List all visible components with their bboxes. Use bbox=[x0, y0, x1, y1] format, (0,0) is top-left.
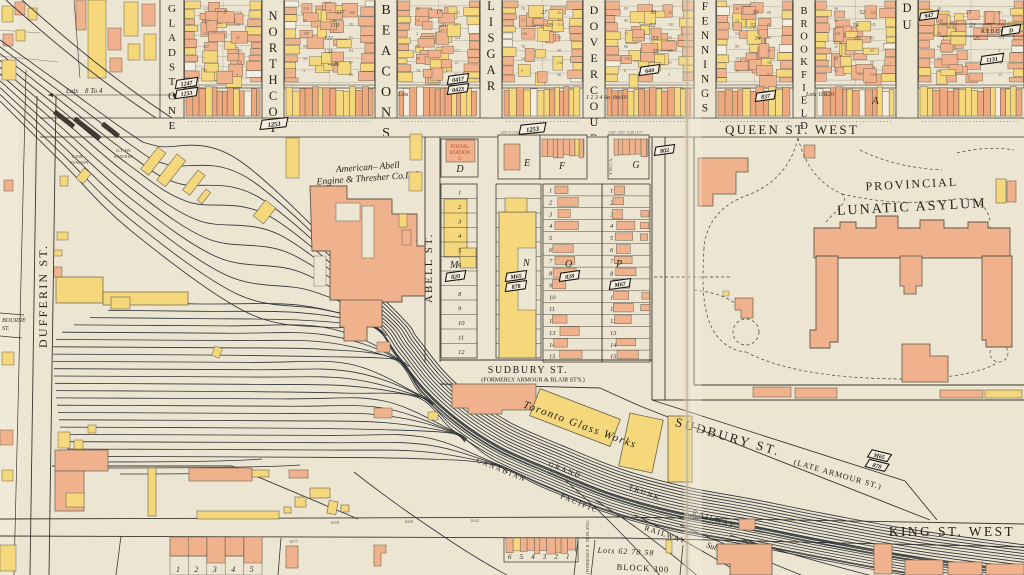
svg-text:122: 122 bbox=[324, 36, 333, 42]
svg-text:117: 117 bbox=[336, 10, 346, 16]
svg-text:(FORMERLY ARMOUR & BLAIR ST'S.: (FORMERLY ARMOUR & BLAIR ST'S.) bbox=[481, 377, 584, 384]
svg-text:878: 878 bbox=[511, 284, 521, 291]
svg-text:83: 83 bbox=[349, 48, 353, 53]
svg-text:13: 13 bbox=[937, 68, 941, 73]
svg-text:95: 95 bbox=[624, 6, 628, 11]
svg-text:97: 97 bbox=[767, 72, 771, 77]
svg-text:54: 54 bbox=[735, 31, 739, 36]
svg-text:1650: 1650 bbox=[330, 520, 340, 525]
svg-text:13: 13 bbox=[549, 330, 556, 337]
svg-text:30: 30 bbox=[751, 10, 758, 16]
svg-text:M: M bbox=[449, 260, 459, 271]
svg-text:121: 121 bbox=[454, 10, 460, 15]
svg-text:3: 3 bbox=[998, 48, 1000, 53]
svg-text:99: 99 bbox=[303, 44, 307, 49]
svg-text:86: 86 bbox=[349, 72, 353, 77]
svg-text:80: 80 bbox=[624, 18, 628, 23]
svg-text:7: 7 bbox=[203, 56, 205, 61]
svg-text:135: 135 bbox=[203, 6, 209, 11]
svg-text:71: 71 bbox=[521, 18, 525, 23]
svg-text:(FORMERLY B. TION AVE): (FORMERLY B. TION AVE) bbox=[585, 520, 590, 574]
svg-text:10: 10 bbox=[834, 44, 838, 49]
svg-text:29: 29 bbox=[454, 22, 458, 27]
svg-text:61: 61 bbox=[998, 10, 1002, 15]
svg-text:C.P.R.: C.P.R. bbox=[72, 154, 83, 159]
svg-text:11: 11 bbox=[458, 334, 464, 341]
svg-text:1347 1357 1139 1177: 1347 1357 1139 1177 bbox=[608, 130, 643, 135]
svg-text:24: 24 bbox=[521, 56, 525, 61]
svg-text:STATION: STATION bbox=[70, 160, 89, 165]
svg-text:16: 16 bbox=[767, 60, 771, 65]
svg-text:644: 644 bbox=[645, 68, 655, 75]
svg-text:828: 828 bbox=[565, 274, 575, 281]
svg-text:P: P bbox=[615, 259, 622, 270]
svg-text:53: 53 bbox=[652, 36, 658, 42]
svg-text:5: 5 bbox=[668, 72, 670, 77]
svg-text:80: 80 bbox=[834, 18, 838, 23]
svg-text:24: 24 bbox=[668, 35, 672, 40]
svg-text:10: 10 bbox=[458, 320, 465, 327]
svg-text:2: 2 bbox=[554, 553, 558, 561]
svg-text:89: 89 bbox=[767, 22, 771, 27]
svg-text:78: 78 bbox=[521, 44, 525, 49]
svg-text:36: 36 bbox=[236, 22, 240, 27]
svg-text:2: 2 bbox=[194, 565, 198, 574]
svg-text:KING ST. WEST: KING ST. WEST bbox=[889, 524, 1015, 539]
svg-text:12: 12 bbox=[416, 18, 420, 23]
svg-text:15: 15 bbox=[549, 354, 556, 361]
svg-text:G.T. RY: G.T. RY bbox=[116, 148, 132, 153]
svg-text:13: 13 bbox=[610, 330, 617, 337]
svg-text:109: 109 bbox=[303, 31, 309, 36]
svg-text:51: 51 bbox=[834, 68, 838, 73]
svg-text:54: 54 bbox=[853, 22, 859, 29]
svg-text:49: 49 bbox=[767, 35, 771, 40]
svg-text:F: F bbox=[558, 161, 566, 172]
svg-text:1077: 1077 bbox=[289, 539, 299, 544]
svg-text:101: 101 bbox=[668, 22, 674, 27]
svg-text:17: 17 bbox=[436, 10, 443, 16]
svg-text:10: 10 bbox=[549, 294, 556, 301]
svg-text:10: 10 bbox=[735, 56, 739, 61]
svg-text:137: 137 bbox=[203, 44, 209, 49]
svg-text:49: 49 bbox=[203, 68, 207, 73]
svg-text:96: 96 bbox=[834, 6, 838, 11]
svg-text:82: 82 bbox=[870, 35, 874, 40]
svg-text:70: 70 bbox=[521, 6, 525, 11]
svg-text:12: 12 bbox=[458, 349, 465, 356]
svg-text:46: 46 bbox=[557, 72, 561, 77]
svg-text:13: 13 bbox=[454, 60, 458, 65]
svg-text:1: 1 bbox=[458, 189, 461, 196]
svg-text:58: 58 bbox=[557, 48, 561, 53]
svg-text:52: 52 bbox=[650, 23, 656, 29]
svg-text:D: D bbox=[455, 164, 464, 175]
svg-text:Lots 8 To 4: Lots 8 To 4 bbox=[65, 87, 103, 95]
svg-text:70: 70 bbox=[557, 35, 561, 40]
svg-text:GLADSTONE: GLADSTONE bbox=[168, 3, 176, 132]
svg-text:1680: 1680 bbox=[404, 519, 414, 524]
svg-text:132: 132 bbox=[557, 60, 563, 65]
svg-text:38: 38 bbox=[668, 48, 672, 53]
svg-text:3: 3 bbox=[212, 565, 217, 574]
svg-text:123: 123 bbox=[834, 31, 840, 36]
svg-text:NORTHCOTE: NORTHCOTE bbox=[268, 9, 277, 151]
svg-text:SUDBURY ST.: SUDBURY ST. bbox=[488, 365, 568, 376]
svg-text:1642: 1642 bbox=[470, 518, 479, 523]
svg-text:36: 36 bbox=[735, 6, 739, 11]
svg-text:114: 114 bbox=[557, 22, 563, 27]
svg-text:138: 138 bbox=[624, 56, 630, 61]
svg-text:Lots: Lots bbox=[397, 92, 409, 98]
svg-text:106: 106 bbox=[349, 10, 355, 15]
svg-text:6: 6 bbox=[624, 68, 626, 73]
svg-text:130: 130 bbox=[937, 18, 943, 23]
svg-text:N: N bbox=[522, 258, 531, 269]
svg-text:133: 133 bbox=[236, 48, 242, 53]
svg-text:98: 98 bbox=[416, 56, 420, 61]
svg-text:55: 55 bbox=[653, 49, 659, 55]
svg-text:55: 55 bbox=[855, 36, 861, 42]
svg-text:99: 99 bbox=[735, 44, 739, 49]
svg-text:ABELL ST.: ABELL ST. bbox=[423, 232, 435, 303]
svg-text:134: 134 bbox=[870, 72, 876, 77]
svg-text:BOURNE: BOURNE bbox=[2, 318, 26, 324]
svg-text:123: 123 bbox=[324, 49, 333, 55]
svg-text:91: 91 bbox=[668, 60, 672, 65]
svg-text:1253: 1253 bbox=[267, 121, 281, 129]
svg-text:1: 1 bbox=[566, 553, 570, 561]
svg-text:11: 11 bbox=[735, 68, 739, 73]
svg-text:59: 59 bbox=[870, 60, 874, 65]
svg-text:68: 68 bbox=[937, 31, 941, 36]
svg-text:62: 62 bbox=[416, 44, 420, 49]
svg-text:52: 52 bbox=[859, 10, 865, 16]
svg-text:15: 15 bbox=[998, 72, 1002, 77]
svg-text:ST.: ST. bbox=[2, 326, 9, 332]
svg-text:31: 31 bbox=[937, 56, 941, 61]
svg-text:3: 3 bbox=[542, 553, 547, 561]
svg-text:68: 68 bbox=[767, 10, 771, 15]
svg-text:78: 78 bbox=[416, 68, 420, 73]
svg-text:39: 39 bbox=[349, 22, 353, 27]
svg-text:119: 119 bbox=[330, 23, 339, 29]
svg-text:QUEEN ST. WEST: QUEEN ST. WEST bbox=[725, 122, 859, 137]
svg-text:1: 1 bbox=[610, 188, 613, 195]
svg-text:117: 117 bbox=[454, 48, 460, 53]
svg-text:118: 118 bbox=[303, 6, 309, 11]
svg-text:87: 87 bbox=[349, 60, 353, 65]
svg-text:50: 50 bbox=[650, 10, 656, 16]
svg-text:41: 41 bbox=[236, 35, 240, 40]
svg-text:32: 32 bbox=[749, 23, 756, 29]
svg-text:124: 124 bbox=[454, 35, 460, 40]
svg-text:29: 29 bbox=[547, 23, 553, 29]
svg-text:17: 17 bbox=[624, 31, 628, 36]
svg-text:DUFFERIN ST.: DUFFERIN ST. bbox=[36, 244, 50, 348]
svg-text:1253: 1253 bbox=[526, 126, 540, 134]
svg-text:5: 5 bbox=[223, 10, 226, 16]
svg-text:131: 131 bbox=[203, 18, 209, 23]
svg-text:Y.M.C.A.: Y.M.C.A. bbox=[608, 158, 613, 175]
svg-text:24: 24 bbox=[767, 48, 771, 53]
svg-text:28: 28 bbox=[416, 6, 420, 11]
svg-text:110: 110 bbox=[236, 10, 242, 15]
svg-text:139: 139 bbox=[203, 31, 209, 36]
svg-text:34: 34 bbox=[754, 35, 761, 42]
svg-text:65: 65 bbox=[870, 48, 874, 53]
svg-text:E: E bbox=[523, 158, 530, 169]
svg-text:80: 80 bbox=[303, 18, 307, 23]
svg-text:Lots 11&20: Lots 11&20 bbox=[805, 92, 834, 98]
svg-text:92: 92 bbox=[937, 44, 941, 49]
svg-text:820: 820 bbox=[451, 274, 461, 281]
svg-text:136: 136 bbox=[521, 31, 527, 36]
svg-text:4: 4 bbox=[416, 31, 418, 36]
svg-text:11: 11 bbox=[549, 306, 555, 313]
svg-text:120: 120 bbox=[870, 10, 876, 15]
svg-text:1: 1 bbox=[549, 188, 552, 195]
svg-text:O: O bbox=[565, 259, 572, 270]
svg-text:136: 136 bbox=[998, 22, 1004, 27]
svg-text:A: A bbox=[871, 95, 879, 107]
svg-text:126: 126 bbox=[330, 62, 339, 68]
svg-text:115: 115 bbox=[236, 60, 242, 65]
svg-text:33: 33 bbox=[303, 56, 307, 61]
svg-text:5: 5 bbox=[250, 565, 254, 574]
svg-text:21: 21 bbox=[966, 10, 972, 16]
svg-text:20: 20 bbox=[440, 23, 446, 29]
svg-text:4: 4 bbox=[236, 72, 238, 77]
svg-text:25: 25 bbox=[974, 36, 980, 42]
svg-text:3: 3 bbox=[303, 68, 305, 73]
svg-text:88: 88 bbox=[834, 56, 838, 61]
svg-text:4: 4 bbox=[531, 553, 535, 561]
svg-text:G: G bbox=[632, 160, 639, 171]
svg-text:802: 802 bbox=[660, 148, 670, 155]
svg-text:42: 42 bbox=[668, 10, 672, 15]
svg-text:5: 5 bbox=[520, 553, 524, 561]
svg-text:16: 16 bbox=[557, 10, 561, 15]
svg-text:27: 27 bbox=[541, 10, 548, 16]
svg-text:15: 15 bbox=[610, 354, 617, 361]
svg-text:6: 6 bbox=[521, 68, 523, 73]
svg-text:12: 12 bbox=[735, 18, 739, 23]
svg-text:6: 6 bbox=[508, 553, 512, 561]
svg-text:125: 125 bbox=[870, 22, 876, 27]
svg-text:4: 4 bbox=[231, 565, 235, 574]
svg-text:STATION: STATION bbox=[114, 154, 133, 159]
svg-text:1: 1 bbox=[176, 565, 180, 574]
svg-text:91: 91 bbox=[349, 35, 353, 40]
svg-text:86: 86 bbox=[624, 44, 628, 49]
